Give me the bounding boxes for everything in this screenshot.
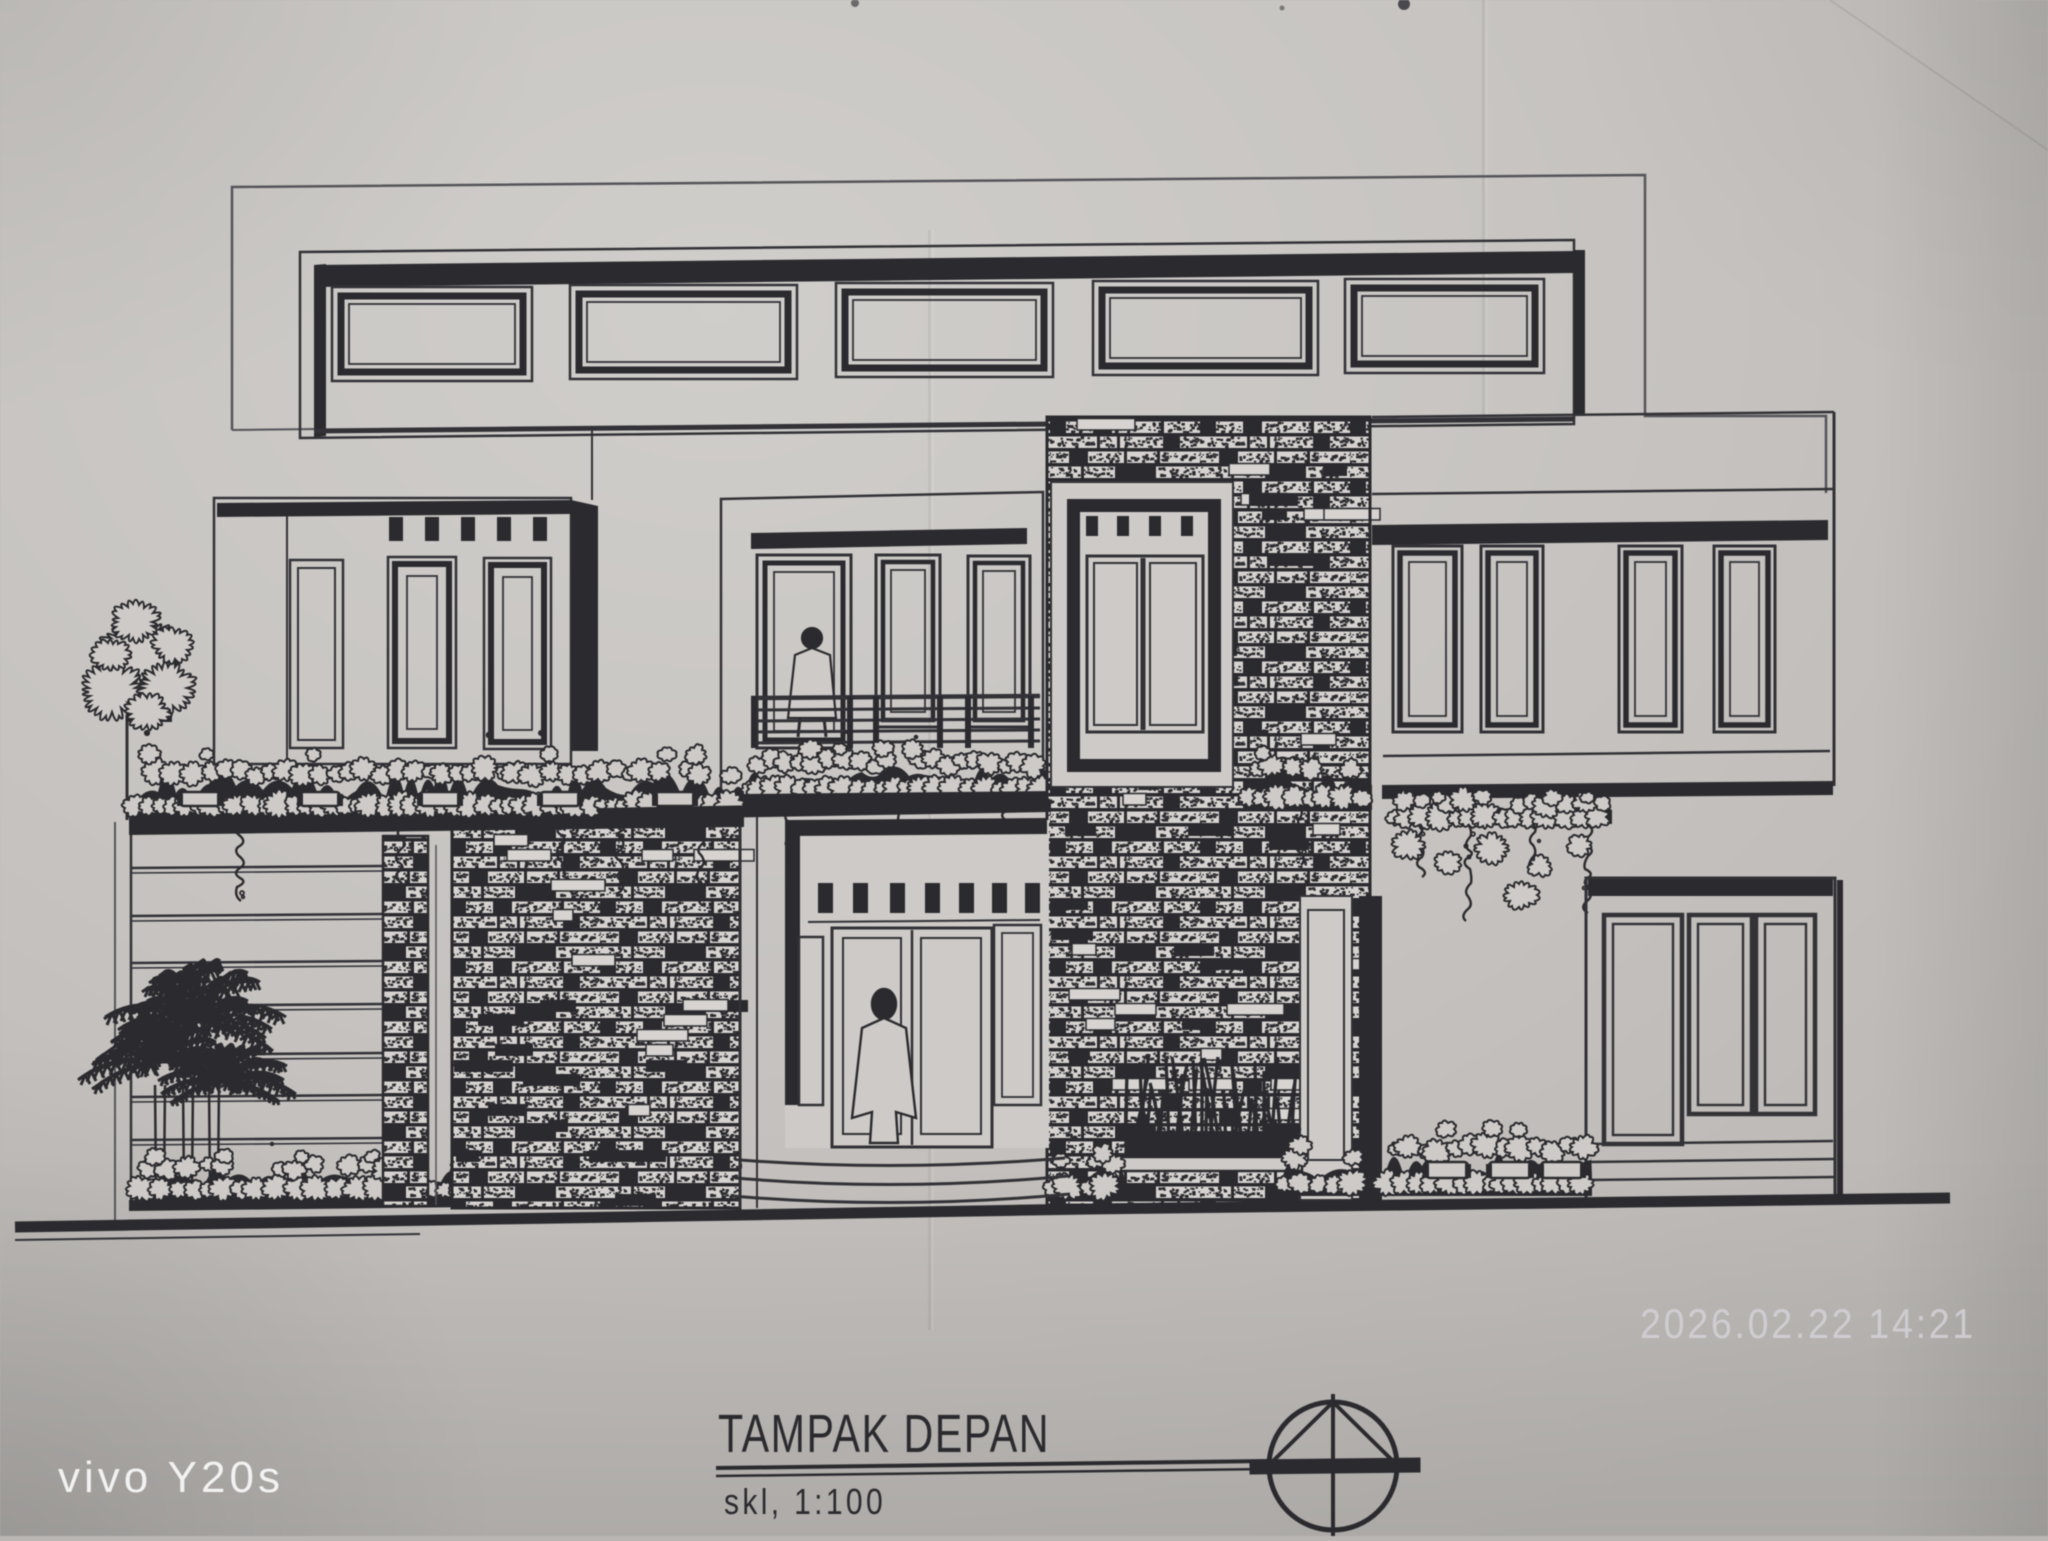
svg-text:2026.02.22 14:21: 2026.02.22 14:21	[1640, 1300, 1976, 1347]
svg-text:skl, 1:100: skl, 1:100	[724, 1481, 886, 1522]
svg-text:TAMPAK DEPAN: TAMPAK DEPAN	[718, 1404, 1050, 1464]
svg-text:vivo Y20s: vivo Y20s	[58, 1453, 284, 1502]
